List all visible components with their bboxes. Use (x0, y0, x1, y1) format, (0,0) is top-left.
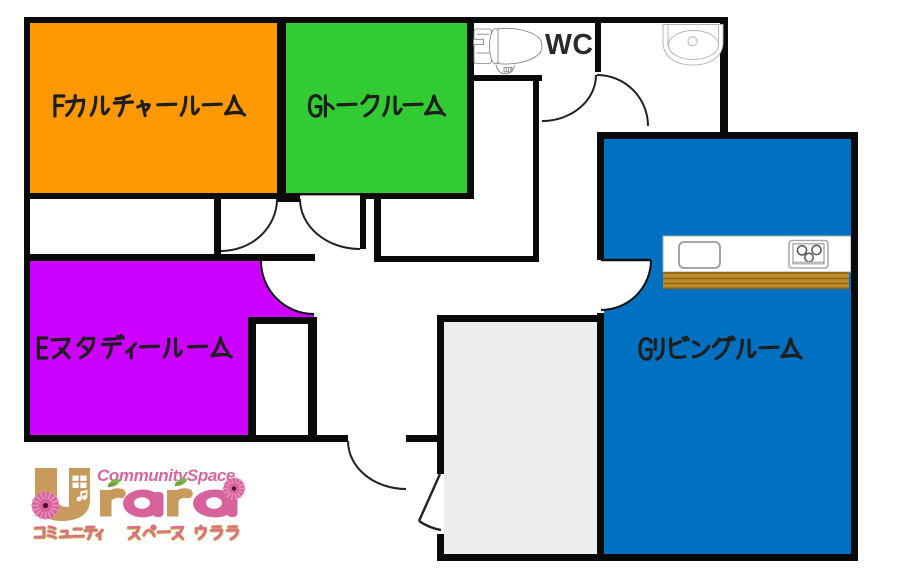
svg-text:WC: WC (545, 29, 593, 61)
